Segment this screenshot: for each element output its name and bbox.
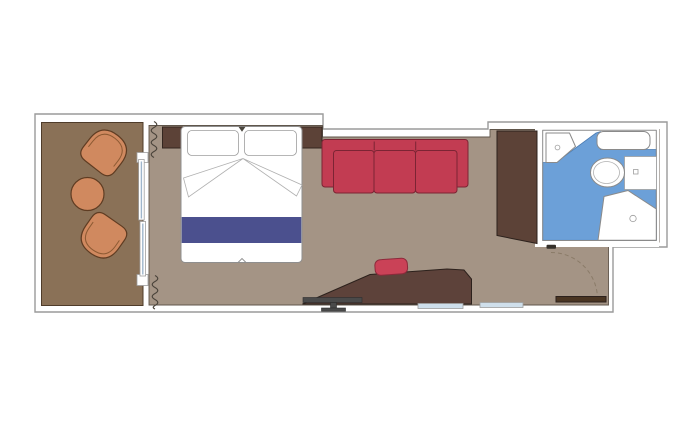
pillow-left <box>188 131 239 156</box>
sofa <box>322 140 468 194</box>
sofa-cushion <box>334 151 375 194</box>
bed-runner <box>182 217 302 243</box>
flush-button-icon <box>634 170 639 175</box>
double-bed <box>181 127 302 263</box>
toilet-tank <box>625 157 657 190</box>
tv-leg <box>331 303 337 309</box>
floor-plan <box>0 0 700 433</box>
stool <box>374 258 408 276</box>
wall-panel-strip <box>480 303 523 308</box>
shower-drain-icon <box>630 215 636 221</box>
wall-panel-strip <box>418 304 463 309</box>
balcony-table <box>71 178 104 211</box>
sofa-cushion <box>416 151 458 194</box>
floor-plan-svg <box>0 0 700 433</box>
tv-foot <box>322 308 346 311</box>
wardrobe <box>497 131 537 244</box>
tv-panel <box>303 298 362 303</box>
bathroom <box>543 130 657 240</box>
entry-door-leaf <box>556 297 606 303</box>
sofa-cushion <box>374 151 416 194</box>
basin-drain-icon <box>555 145 560 150</box>
bathroom-door-mark <box>547 245 557 249</box>
pillow-right <box>245 131 297 156</box>
vanity-shelf <box>597 132 650 150</box>
